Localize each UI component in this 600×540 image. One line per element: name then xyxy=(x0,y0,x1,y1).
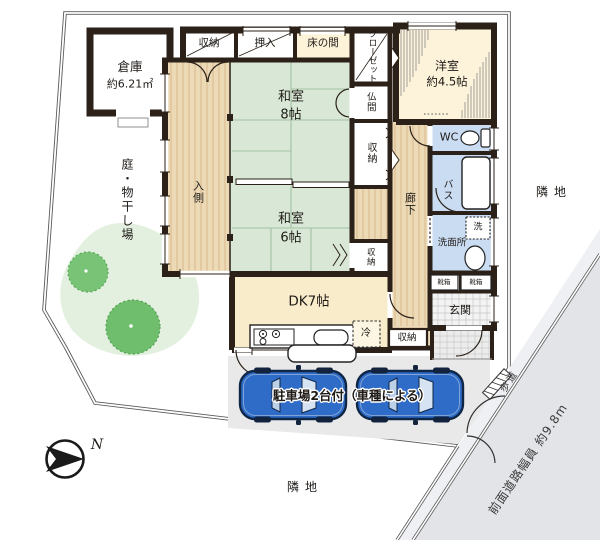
warehouse-area-label: 約6.21㎡ xyxy=(107,79,154,90)
north-label: N xyxy=(91,438,103,452)
tree-large xyxy=(106,300,160,354)
storage-tatami6-label: 収納 xyxy=(366,248,375,267)
fridge-label: 冷 xyxy=(361,329,371,339)
butsuma-label: 仏間 xyxy=(365,92,375,113)
storage-top-label: 収納 xyxy=(199,38,220,49)
oshiire-label: 押入 xyxy=(255,38,276,49)
western-room-size-label: 約4.5帖 xyxy=(426,76,467,88)
tokonoma-label: 床の間 xyxy=(307,38,339,49)
shoebox-right-label: 靴箱 xyxy=(470,279,483,286)
storage-entrance-label: 収納 xyxy=(397,333,416,343)
bath-label: バス xyxy=(441,179,451,201)
room-irigawa xyxy=(165,58,232,276)
floor-plan: 倉庫 約6.21㎡ 収納 押入 床の間 クローゼット 洋室 約4.5帖 仏間 和… xyxy=(0,0,600,540)
closet-label: クローゼット xyxy=(367,29,376,83)
bathtub-icon xyxy=(462,157,490,209)
tree-small xyxy=(68,252,108,292)
washitsu6-label: 和室 xyxy=(278,213,304,226)
irigawa-label: 入側 xyxy=(193,180,204,204)
washroom-label: 洗面所 xyxy=(438,238,467,248)
floor-plan-graphics xyxy=(0,0,600,540)
compass-icon xyxy=(46,441,84,478)
washitsu8-size-label: 8帖 xyxy=(280,109,301,122)
dk-label: DK7帖 xyxy=(288,295,329,309)
wc-label: WC xyxy=(440,132,459,143)
warehouse-label: 倉庫 xyxy=(117,61,142,74)
wood-strip-mid xyxy=(352,187,392,241)
garden-label: 庭・物干し場 xyxy=(121,158,133,242)
washitsu8-label: 和室 xyxy=(278,91,304,104)
washitsu6-size-label: 6帖 xyxy=(280,232,301,245)
hallway-label: 廊下 xyxy=(405,192,416,216)
storage-mid-label: 収納 xyxy=(365,142,375,164)
kitchen-step xyxy=(288,345,356,362)
neighbor-right-label: 隣地 xyxy=(536,186,572,198)
western-room-label: 洋室 xyxy=(435,60,459,72)
basin-icon xyxy=(465,246,485,270)
washer-label: 洗 xyxy=(473,224,482,233)
neighbor-bottom-label: 隣地 xyxy=(287,481,323,493)
shoebox-left-label: 靴箱 xyxy=(438,279,451,286)
entrance-label: 玄関 xyxy=(449,305,471,316)
parking-label: 駐車場2台付（車種による） xyxy=(273,390,431,403)
